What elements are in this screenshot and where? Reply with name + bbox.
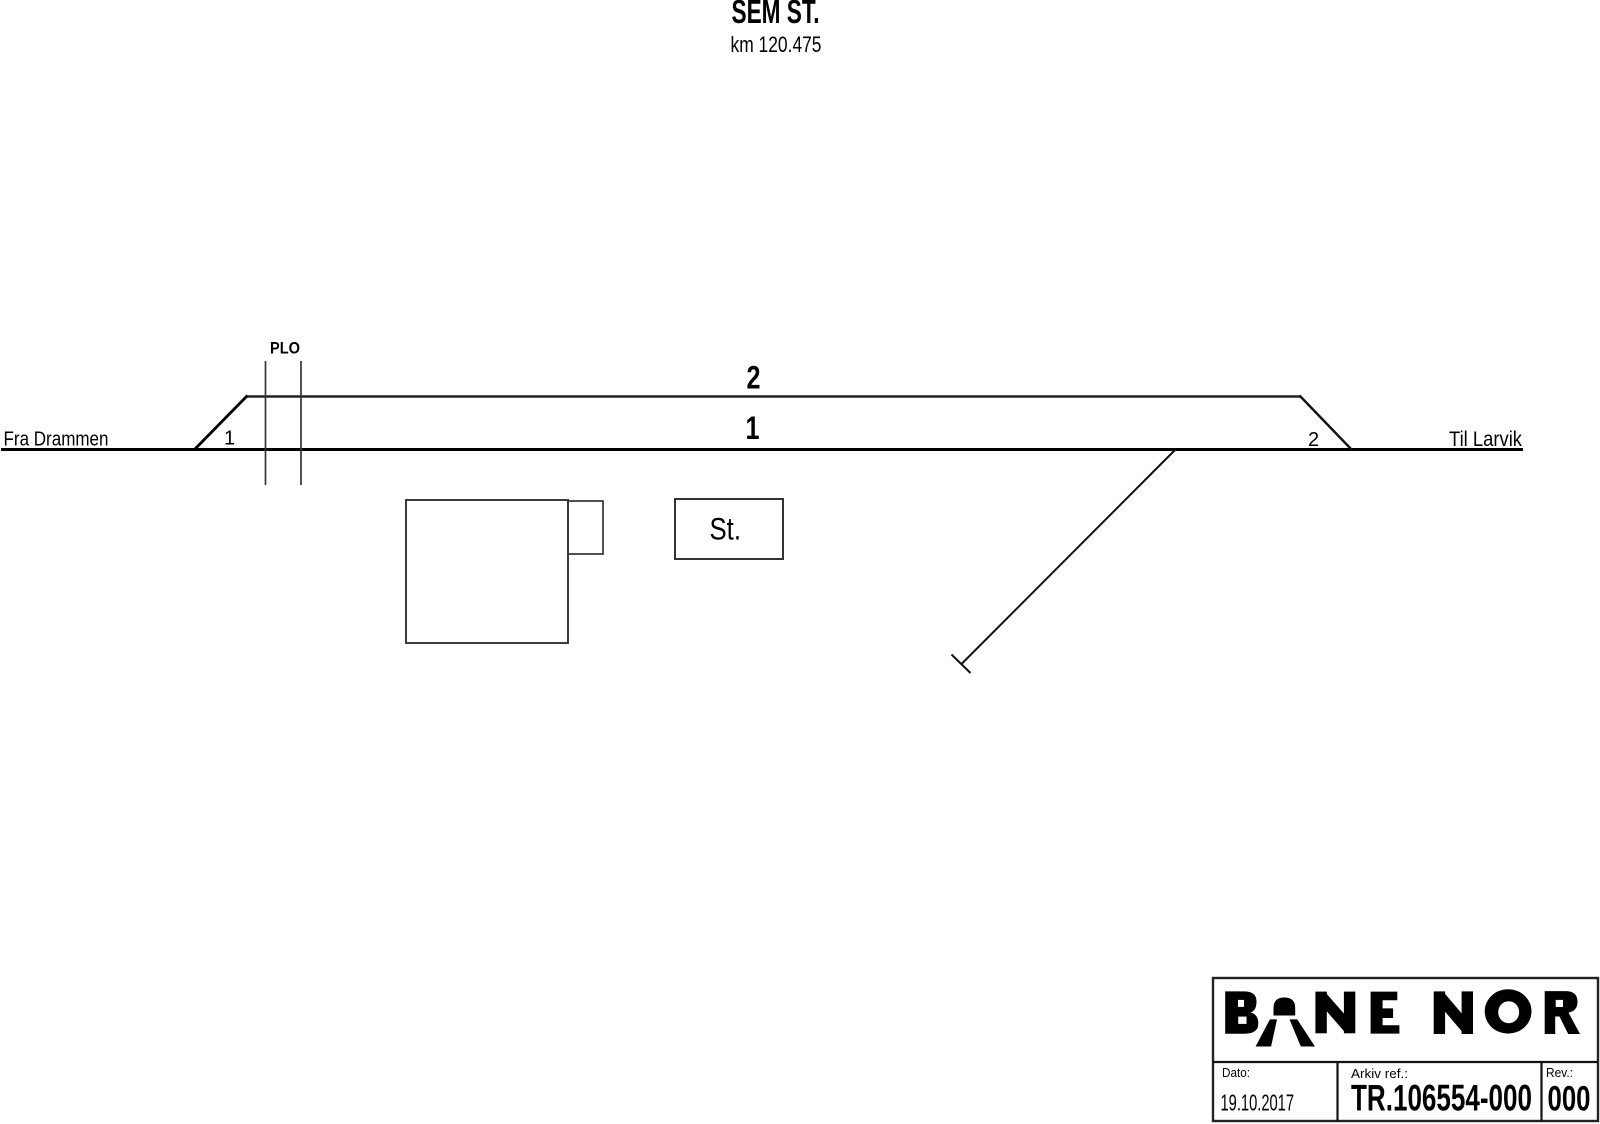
svg-text:1: 1: [746, 410, 760, 446]
svg-text:SEM ST.: SEM ST.: [732, 0, 820, 31]
svg-text:Dato:: Dato:: [1222, 1066, 1250, 1080]
svg-text:1: 1: [224, 428, 235, 450]
svg-text:2: 2: [747, 360, 761, 396]
svg-text:Til Larvik: Til Larvik: [1449, 428, 1522, 451]
svg-text:19.10.2017: 19.10.2017: [1221, 1090, 1295, 1116]
svg-text:2: 2: [1308, 429, 1319, 451]
svg-text:PLO: PLO: [270, 339, 300, 358]
svg-text:km 120.475: km 120.475: [731, 32, 822, 57]
svg-text:St.: St.: [710, 511, 742, 547]
svg-text:TR.106554-000: TR.106554-000: [1351, 1078, 1532, 1119]
svg-text:000: 000: [1548, 1079, 1591, 1119]
svg-text:Fra Drammen: Fra Drammen: [4, 427, 109, 450]
